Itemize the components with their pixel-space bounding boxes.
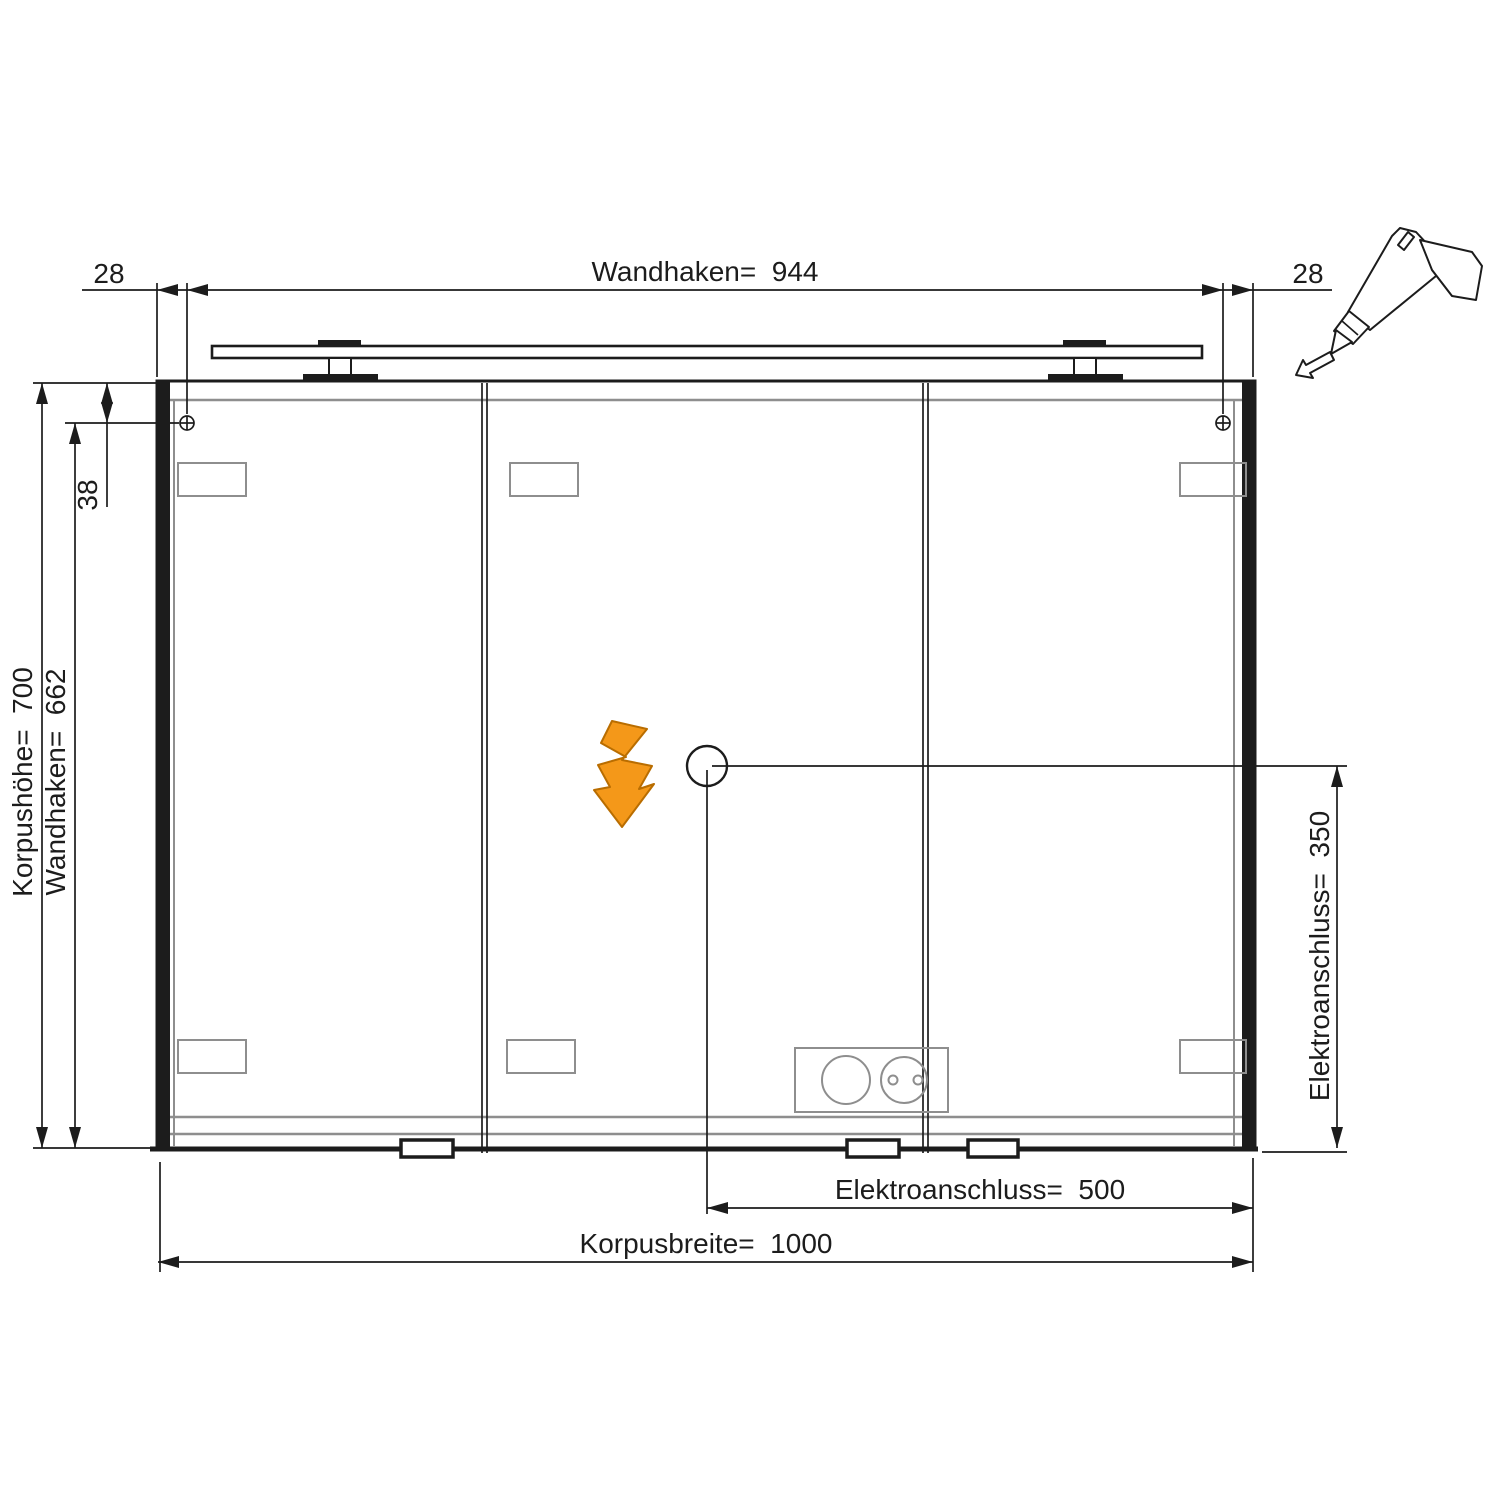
direction-arrow-icon <box>1296 352 1334 378</box>
arrowhead <box>36 383 48 404</box>
socket-outlet-icon <box>795 1048 948 1112</box>
light-stem <box>1074 358 1096 375</box>
dim-label-body-height: Korpushöhe= 700 <box>7 667 38 897</box>
arrowhead <box>1232 1202 1253 1214</box>
dimension-right: Elektroanschluss= 350 <box>1262 766 1347 1152</box>
hinge-icon <box>178 1040 246 1073</box>
door-hinges <box>178 463 1246 1073</box>
arrowhead <box>101 402 113 423</box>
dim-label-offset-left: 28 <box>93 258 124 289</box>
door-divider-right <box>923 383 928 1153</box>
arrowhead <box>707 1202 728 1214</box>
dim-label-body-width: Korpusbreite= 1000 <box>580 1228 833 1259</box>
arrowhead <box>157 284 178 296</box>
socket-pin-hole <box>889 1076 898 1085</box>
socket-pin-hole <box>914 1076 923 1085</box>
light-fixture <box>212 340 1202 382</box>
hinge-icon <box>1180 1040 1246 1073</box>
light-bar <box>212 346 1202 358</box>
arrowhead <box>1202 284 1223 296</box>
screw-marker-icon <box>1216 416 1230 430</box>
arrowhead <box>1232 1256 1253 1268</box>
cabinet-carcass <box>150 381 1258 1153</box>
dim-label-hook-inset: 38 <box>72 479 103 510</box>
arrowhead <box>187 284 208 296</box>
hinge-icon <box>507 1040 575 1073</box>
arrowhead <box>101 383 113 404</box>
light-base-plate <box>303 374 378 382</box>
arrowhead <box>69 423 81 444</box>
carcass-outline <box>157 381 1255 1149</box>
handle-icon <box>847 1140 899 1157</box>
dimension-bottom: Elektroanschluss= 500 Korpusbreite= 1000 <box>158 1158 1253 1272</box>
dim-label-electrical-height: Elektroanschluss= 350 <box>1304 811 1335 1101</box>
hinge-icon <box>178 463 246 496</box>
wall-hook-screws <box>180 416 1230 430</box>
arrowhead <box>1331 1127 1343 1148</box>
lightning-bolt-icon <box>594 721 654 827</box>
dim-label-offset-right: 28 <box>1292 258 1323 289</box>
handle-icon <box>968 1140 1018 1157</box>
arrowhead <box>1331 766 1343 787</box>
hinge-icon <box>1180 463 1246 496</box>
drill-icon <box>1296 228 1482 378</box>
dim-label-wall-hook-height: Wandhaken= 662 <box>40 668 71 895</box>
hinge-icon <box>510 463 578 496</box>
lightning-bolt-shape <box>594 721 654 827</box>
mirror-cabinet-technical-drawing: 28 Wandhaken= 944 28 Korpushöhe= 700 Wan… <box>0 0 1500 1500</box>
dimension-top: 28 Wandhaken= 944 28 <box>82 256 1332 414</box>
arrowhead <box>1232 284 1253 296</box>
door-divider-left <box>482 383 487 1153</box>
screw-marker-icon <box>180 416 194 430</box>
installation-drawing-page: 28 Wandhaken= 944 28 Korpushöhe= 700 Wan… <box>0 0 1500 1500</box>
dim-label-wall-hook-width: Wandhaken= 944 <box>591 256 818 287</box>
arrowhead <box>158 1256 179 1268</box>
arrowhead <box>69 1127 81 1148</box>
light-stem <box>329 358 351 375</box>
socket-box <box>795 1048 948 1112</box>
light-base-plate <box>1048 374 1123 382</box>
socket-round-left <box>822 1056 870 1104</box>
carcass-left-side-panel <box>157 381 170 1149</box>
dim-label-electrical-width: Elektroanschluss= 500 <box>835 1174 1125 1205</box>
arrowhead <box>36 1127 48 1148</box>
handle-icon <box>401 1140 453 1157</box>
dimension-left: Korpushöhe= 700 Wandhaken= 662 38 <box>7 383 179 1148</box>
